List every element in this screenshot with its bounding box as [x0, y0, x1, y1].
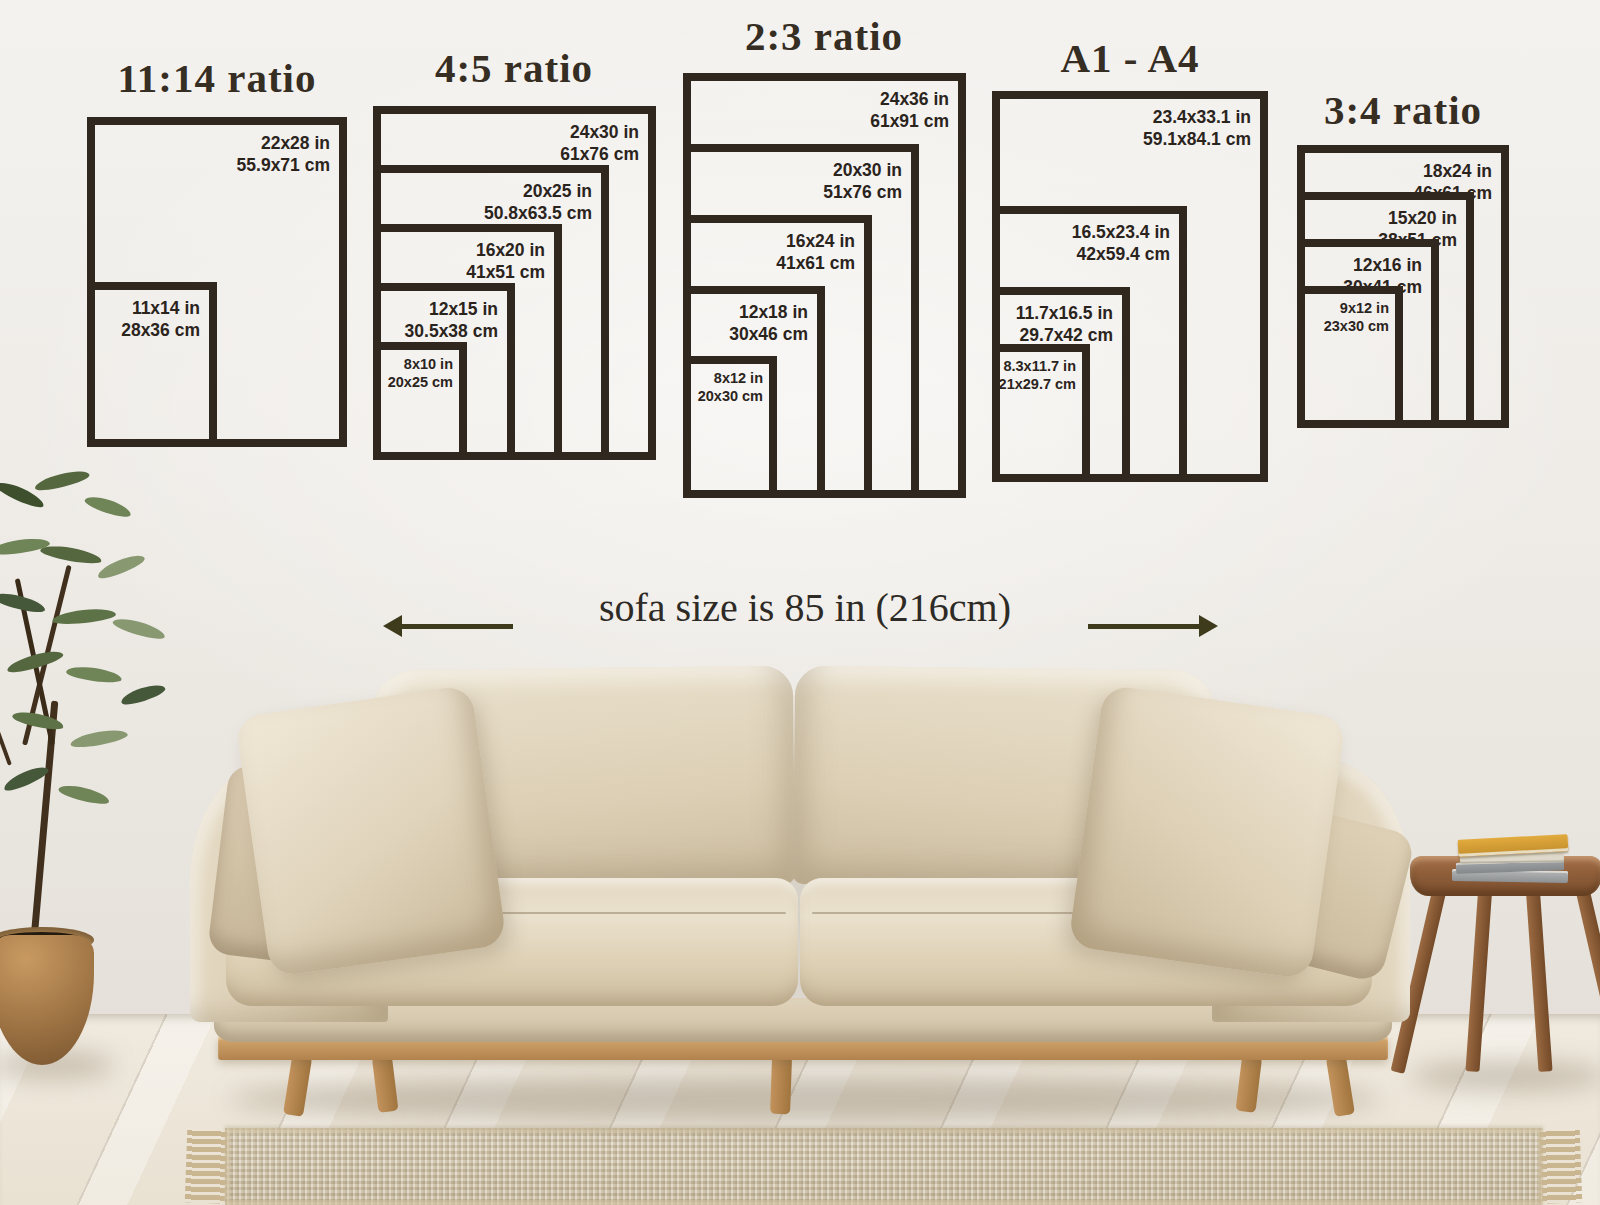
right-arrow-icon — [1088, 624, 1199, 629]
size-cm-label: 51x76 cm — [823, 181, 902, 203]
rug-fringe-right — [1540, 1129, 1583, 1203]
group-title-3-4: 3:4 ratio — [1243, 86, 1563, 134]
size-in-label: 8x10 in — [388, 355, 453, 373]
frame-group-11-14: 22x28 in55.9x71 cm 11x14 in28x36 cm — [87, 117, 347, 447]
frame-group-2-3: 24x36 in61x91 cm 20x30 in51x76 cm 16x24 … — [683, 73, 966, 498]
size-in-label: 16x24 in — [776, 230, 855, 252]
frame-group-4-5: 24x30 in61x76 cm 20x25 in50.8x63.5 cm 16… — [373, 106, 656, 460]
size-frame-8x12: 8x12 in20x30 cm — [683, 356, 777, 498]
size-frame-9x12: 9x12 in23x30 cm — [1297, 286, 1403, 428]
size-cm-label: 30.5x38 cm — [405, 320, 498, 342]
size-cm-label: 59.1x84.1 cm — [1143, 128, 1251, 150]
stool-floor-shadow — [1410, 1062, 1600, 1090]
size-in-label: 20x25 in — [484, 180, 592, 202]
size-cm-label: 41x51 cm — [466, 261, 545, 283]
poster-size-guide-scene: 11:14 ratio 4:5 ratio 2:3 ratio A1 - A4 … — [0, 0, 1600, 1205]
size-cm-label: 55.9x71 cm — [237, 154, 330, 176]
size-in-label: 11x14 in — [121, 297, 200, 319]
left-arrow-icon — [402, 624, 513, 629]
size-in-label: 8x12 in — [698, 369, 763, 387]
size-in-label: 12x15 in — [405, 298, 498, 320]
wall-shadow — [140, 620, 1470, 1020]
size-in-label: 16.5x23.4 in — [1072, 221, 1170, 243]
rug — [225, 1128, 1543, 1205]
frame-group-3-4: 18x24 in46x61 cm 15x20 in38x51 cm 12x16 … — [1297, 145, 1509, 428]
size-cm-label: 42x59.4 cm — [1072, 243, 1170, 265]
frame-group-a1-a4: 23.4x33.1 in59.1x84.1 cm 16.5x23.4 in42x… — [992, 91, 1268, 482]
size-in-label: 24x30 in — [560, 121, 639, 143]
size-cm-label: 50.8x63.5 cm — [484, 202, 592, 224]
size-in-label: 12x18 in — [729, 301, 808, 323]
group-title-a1-a4: A1 - A4 — [970, 34, 1290, 82]
sofa-size-label: sofa size is 85 in (216cm) — [525, 584, 1085, 631]
size-in-label: 15x20 in — [1378, 207, 1457, 229]
size-in-label: 16x20 in — [466, 239, 545, 261]
size-cm-label: 21x29.7 cm — [999, 375, 1076, 393]
size-in-label: 12x16 in — [1343, 254, 1422, 276]
size-in-label: 22x28 in — [237, 132, 330, 154]
group-title-4-5: 4:5 ratio — [354, 44, 674, 92]
size-frame-8x10: 8x10 in20x25 cm — [373, 342, 467, 460]
size-in-label: 18x24 in — [1413, 160, 1492, 182]
size-cm-label: 41x61 cm — [776, 252, 855, 274]
size-in-label: 23.4x33.1 in — [1143, 106, 1251, 128]
group-title-11-14: 11:14 ratio — [57, 54, 377, 102]
size-in-label: 20x30 in — [823, 159, 902, 181]
size-cm-label: 20x25 cm — [388, 373, 453, 391]
rug-fringe-left — [185, 1129, 228, 1203]
size-cm-label: 61x91 cm — [870, 110, 949, 132]
group-title-2-3: 2:3 ratio — [664, 12, 984, 60]
sofa-floor-shadow — [230, 1076, 1380, 1122]
size-cm-label: 28x36 cm — [121, 319, 200, 341]
size-in-label: 8.3x11.7 in — [999, 357, 1076, 375]
size-frame-11x14: 11x14 in28x36 cm — [87, 282, 217, 447]
size-cm-label: 23x30 cm — [1324, 317, 1389, 335]
size-cm-label: 61x76 cm — [560, 143, 639, 165]
size-cm-label: 20x30 cm — [698, 387, 763, 405]
size-in-label: 9x12 in — [1324, 299, 1389, 317]
size-in-label: 24x36 in — [870, 88, 949, 110]
size-frame-a4: 8.3x11.7 in21x29.7 cm — [992, 344, 1090, 482]
size-in-label: 11.7x16.5 in — [1016, 302, 1113, 324]
size-cm-label: 30x46 cm — [729, 323, 808, 345]
